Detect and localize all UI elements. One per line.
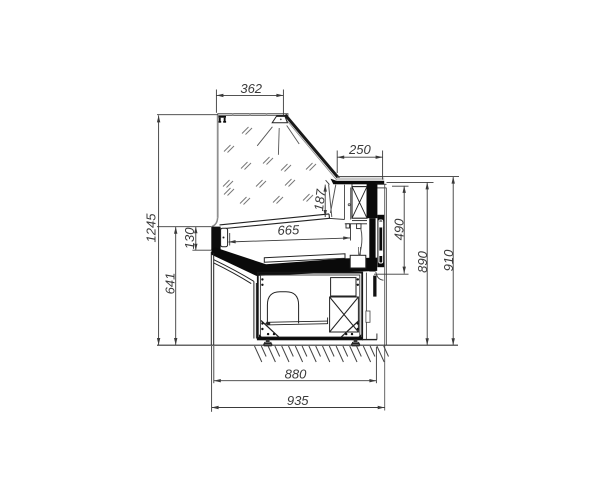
svg-text:880: 880 — [285, 366, 307, 381]
svg-text:130: 130 — [182, 227, 197, 249]
svg-text:1245: 1245 — [144, 213, 159, 243]
svg-text:362: 362 — [240, 81, 262, 96]
svg-text:187: 187 — [311, 188, 329, 212]
svg-text:641: 641 — [162, 273, 177, 295]
svg-text:935: 935 — [287, 393, 309, 408]
svg-text:890: 890 — [415, 250, 430, 272]
svg-text:665: 665 — [277, 222, 300, 238]
svg-text:250: 250 — [348, 142, 371, 157]
svg-text:490: 490 — [391, 218, 406, 240]
svg-text:910: 910 — [441, 249, 456, 271]
